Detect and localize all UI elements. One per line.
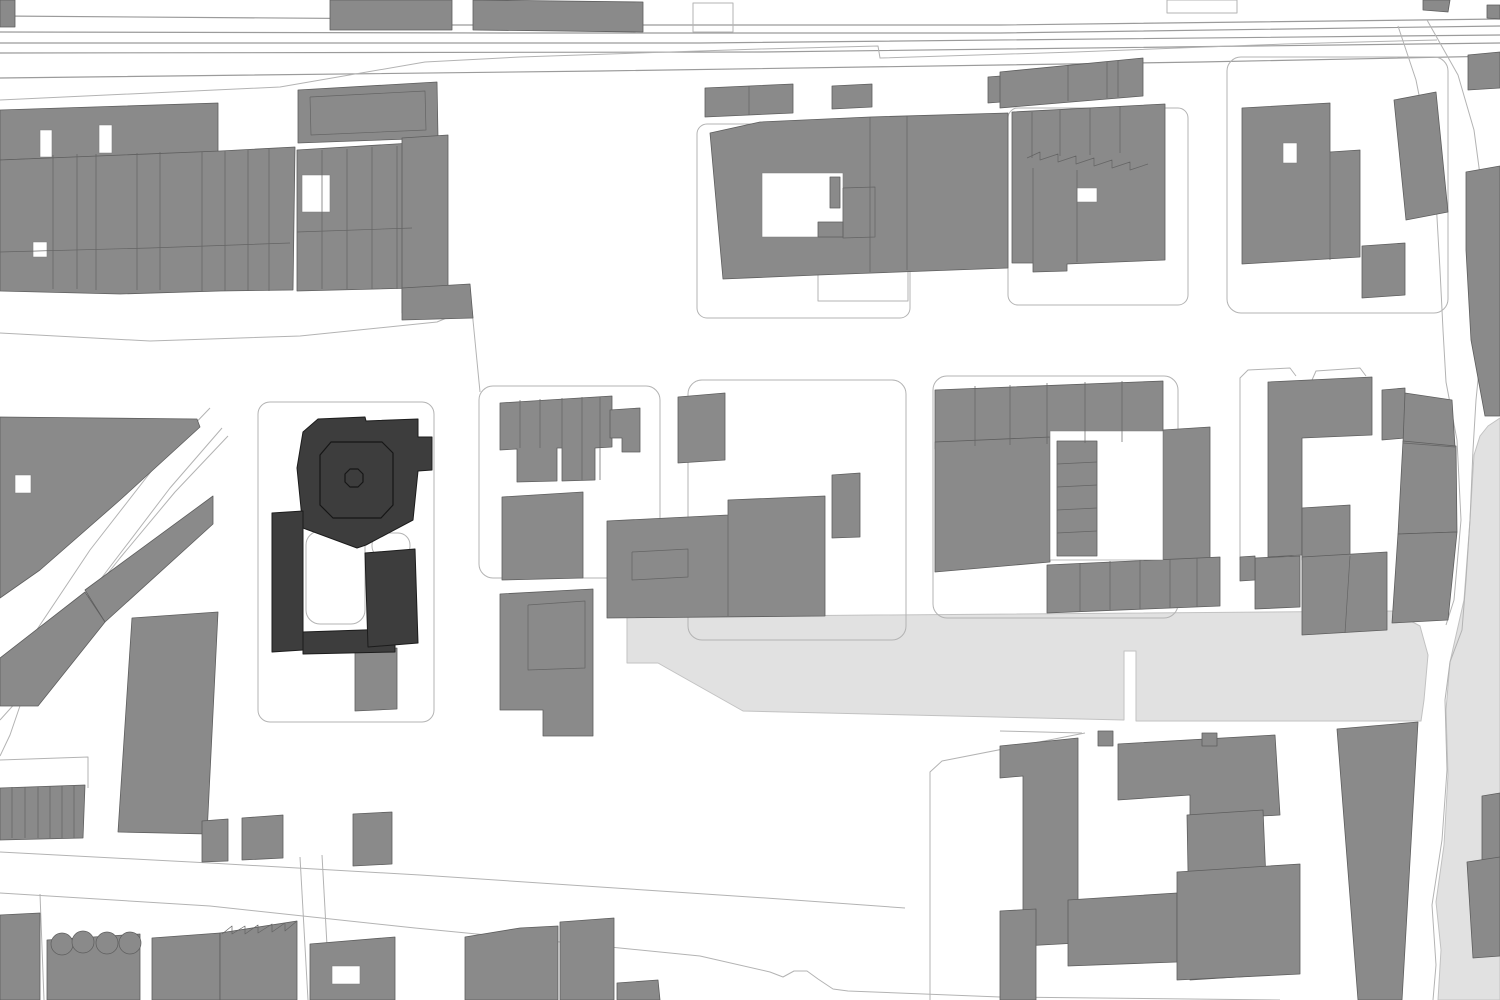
building-footprint <box>355 648 397 711</box>
courtyard-cutout <box>40 130 52 157</box>
railway-lines <box>0 16 1500 78</box>
courtyard-cutout <box>99 125 112 153</box>
building-footprint <box>1163 427 1210 566</box>
building-footprint <box>1068 893 1177 966</box>
railway-line <box>0 16 1500 25</box>
building-footprint <box>473 0 643 32</box>
bay-window-bump <box>51 933 73 955</box>
building-footprint <box>1242 103 1360 264</box>
building-footprint <box>1255 556 1300 609</box>
building-footprint <box>330 0 452 30</box>
building-footprint <box>1177 864 1300 980</box>
building-footprint <box>710 113 1008 279</box>
building-footprint <box>500 589 593 736</box>
building-footprint <box>1098 731 1113 746</box>
building-footprint <box>0 913 40 1000</box>
building-footprint <box>353 812 392 866</box>
building-footprint <box>832 473 860 538</box>
building-footprint <box>465 926 558 1000</box>
inner-building <box>830 177 840 208</box>
courtyard-cutout <box>1283 143 1297 163</box>
building-footprint <box>0 592 105 706</box>
railway-line <box>0 35 1500 43</box>
highlighted-building-part <box>365 549 418 647</box>
street-outline <box>1167 0 1237 13</box>
building-footprint <box>1468 52 1500 90</box>
bay-window-bump <box>96 932 118 954</box>
building-footprint <box>118 612 218 834</box>
building-footprint <box>1302 552 1387 635</box>
building-footprint <box>152 933 220 1000</box>
building-footprint <box>607 496 825 618</box>
street-outline <box>0 852 905 908</box>
highlighted-building-part <box>297 417 432 548</box>
building-footprints <box>0 0 1500 1000</box>
highlighted-building <box>272 417 432 654</box>
building-footprint <box>1467 857 1500 958</box>
building-footprint <box>0 417 200 598</box>
building-footprint <box>1398 441 1457 534</box>
building-footprint <box>832 84 872 109</box>
bay-window-bump <box>72 931 94 953</box>
building-footprint <box>1362 243 1405 298</box>
courtyard-cutout <box>33 242 47 257</box>
building-footprint <box>1240 556 1255 581</box>
building-footprint <box>1000 909 1036 1000</box>
street-outline <box>818 271 908 301</box>
railway-line <box>0 26 1500 33</box>
building-footprint <box>500 396 612 482</box>
building-footprint <box>502 492 583 580</box>
building-footprint <box>402 284 473 320</box>
building-footprint <box>1392 532 1457 623</box>
street-outline <box>693 3 733 32</box>
courtyard-cutout <box>332 966 360 984</box>
building-footprint <box>610 408 640 452</box>
building-footprint <box>1202 733 1217 746</box>
inner-building <box>1057 441 1097 556</box>
building-footprint <box>617 980 660 1000</box>
building-footprint <box>242 815 283 860</box>
site-plan-map <box>0 0 1500 1000</box>
building-footprint <box>1000 58 1143 108</box>
inner-building <box>818 222 843 237</box>
building-footprint <box>0 0 15 27</box>
building-footprint <box>1466 166 1500 416</box>
street-outline <box>0 757 88 788</box>
building-footprint <box>1382 388 1405 440</box>
building-footprint <box>0 147 295 294</box>
building-footprint <box>560 918 614 1000</box>
building-footprint <box>935 437 1050 572</box>
building-footprint <box>1337 722 1418 1000</box>
street-outline <box>300 857 308 1000</box>
building-footprint <box>1487 5 1500 19</box>
building-footprint <box>0 785 85 840</box>
building-footprint <box>1482 793 1500 862</box>
street-outline <box>472 310 480 392</box>
bay-window-bump <box>119 932 141 954</box>
site-plan-viewport <box>0 0 1500 1000</box>
street-outline <box>0 309 468 341</box>
railway-line <box>0 56 1500 78</box>
building-footprint <box>1047 557 1220 613</box>
building-footprint <box>678 393 725 463</box>
building-footprint <box>202 819 228 862</box>
street-outline <box>1000 731 1082 733</box>
building-footprint <box>1302 505 1350 560</box>
building-footprint <box>1394 92 1448 220</box>
courtyard-cutout <box>302 175 330 212</box>
street-outline <box>40 894 44 1000</box>
courtyard-cutout <box>1077 188 1097 202</box>
building-footprint <box>1403 393 1455 447</box>
building-footprint <box>1118 735 1280 820</box>
highlighted-building-part <box>272 511 303 652</box>
building-footprint <box>1423 0 1450 12</box>
courtyard-cutout <box>15 475 31 493</box>
